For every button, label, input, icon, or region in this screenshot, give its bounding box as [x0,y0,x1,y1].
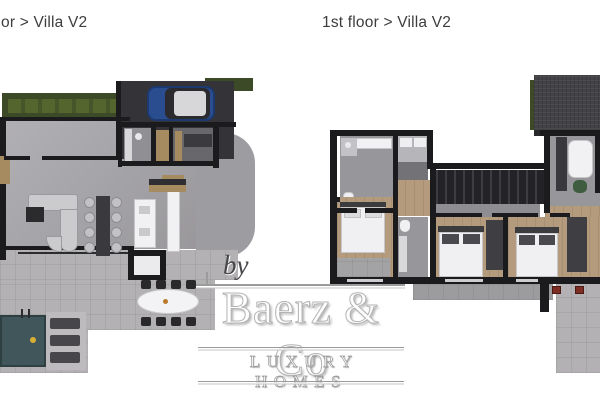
storage-box [400,138,412,147]
wall-segment [432,213,482,217]
brand-watermark: by Baerz & Co LUXURY HOMES [195,248,407,390]
outdoor-chair [575,286,584,294]
wall-segment [508,213,538,217]
pillow [442,234,459,244]
window [516,279,538,282]
staircase [436,170,544,204]
wall-segment [330,130,433,136]
wall-segment [365,208,395,213]
watermark-tagline-text: LUXURY HOMES [195,352,407,392]
wall-segment [550,213,570,217]
roof-terrace [556,282,600,373]
wardrobe [567,210,587,272]
shower-drain [345,142,351,148]
wall-segment [595,133,600,193]
window [445,279,483,282]
watermark-by-text: by [223,250,248,281]
wall-segment [540,277,600,284]
wall-segment [427,163,549,169]
outdoor-chair [552,286,561,294]
wall-segment [544,133,550,213]
watermark-rule [198,347,404,348]
bathroom-cabinet [556,137,567,191]
toilet [400,220,410,232]
storage-box [414,138,426,147]
hallway-floor [396,180,430,216]
watermark-rule [198,381,404,382]
pillow [519,235,535,245]
pillow [463,234,480,244]
wall-segment [337,208,357,213]
wall-segment [430,169,436,283]
roof-canopy [534,75,600,133]
floor-plan-page: or > Villa V2 1st floor > Villa V2 [0,0,600,400]
vanity [352,138,392,149]
bathtub [568,140,593,178]
wall-segment [540,284,549,312]
stool [573,180,587,193]
balcony [413,282,553,300]
wall-segment [503,213,508,283]
wall-segment [330,197,340,202]
wardrobe [486,220,504,270]
pillow [539,235,555,245]
